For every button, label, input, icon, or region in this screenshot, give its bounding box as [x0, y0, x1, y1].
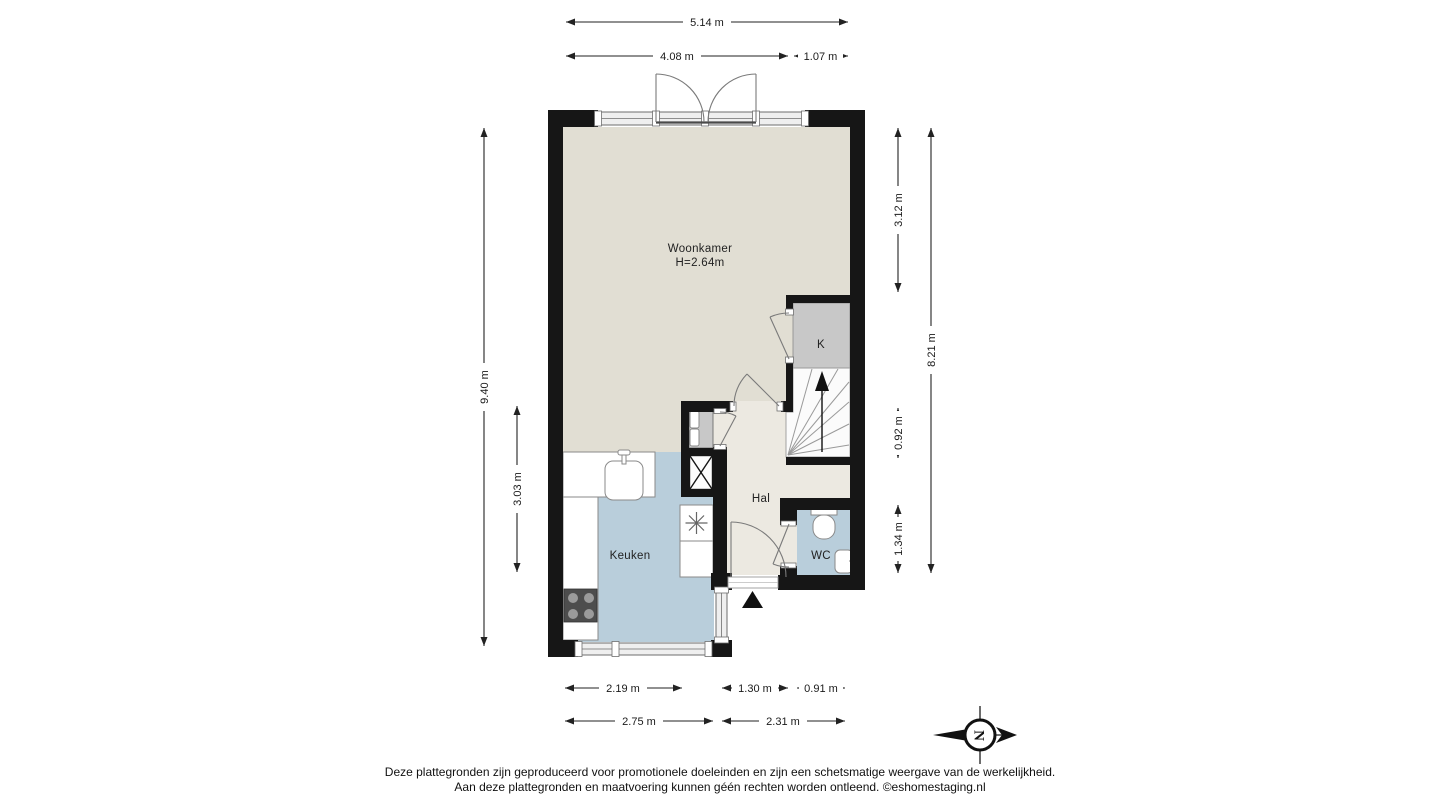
disclaimer-line-2: Aan deze plattegronden en maatvoering ku… [454, 780, 985, 794]
staircase [786, 368, 850, 457]
window-sidelight [715, 587, 729, 643]
room-label-kast: K [817, 339, 825, 351]
dimension-right-total: 8.21 m [924, 128, 938, 573]
dimension-bottom-door: 1.30 m [722, 681, 788, 695]
room-label-woonkamer-height: H=2.64m [675, 257, 724, 269]
dimension-left-kitchen: 3.03 m [510, 406, 524, 572]
room-label-woonkamer: Woonkamer [668, 243, 732, 255]
svg-text:4.08 m: 4.08 m [660, 51, 694, 63]
floorplan-page: Woonkamer H=2.64m Keuken Hal WC K 5.14 m… [0, 0, 1440, 810]
dimension-top-total: 5.14 m [566, 15, 848, 29]
svg-text:1.30 m: 1.30 m [738, 683, 772, 695]
svg-text:3.12 m: 3.12 m [893, 193, 905, 227]
kitchen-appliance-washer [680, 505, 713, 541]
room-kast-floor [793, 303, 850, 368]
svg-text:3.03 m: 3.03 m [512, 472, 524, 506]
entrance-marker [742, 591, 763, 608]
dimension-left-total: 9.40 m [477, 128, 491, 646]
svg-text:0.91 m: 0.91 m [804, 683, 838, 695]
dimension-right-living: 3.12 m [891, 128, 905, 292]
svg-text:2.19 m: 2.19 m [606, 683, 640, 695]
svg-text:1.07 m: 1.07 m [804, 51, 838, 63]
svg-text:2.31 m: 2.31 m [766, 716, 800, 728]
svg-text:1.34 m: 1.34 m [893, 522, 905, 556]
dimension-top-left: 4.08 m [566, 49, 788, 63]
dimension-bottom-right-section: 2.31 m [722, 714, 845, 728]
kitchen-appliance-cabinet [680, 541, 713, 577]
room-label-keuken: Keuken [610, 550, 651, 562]
meter-cupboard [689, 455, 713, 490]
svg-text:2.75 m: 2.75 m [622, 716, 656, 728]
svg-text:5.14 m: 5.14 m [690, 17, 724, 29]
boiler-closet [689, 409, 713, 448]
dimension-bottom-window: 2.19 m [565, 681, 682, 695]
window-bottom [575, 642, 712, 657]
compass: N [933, 706, 1017, 764]
toilet [811, 509, 837, 539]
dimension-bottom-left-section: 2.75 m [565, 714, 713, 728]
svg-text:9.40 m: 9.40 m [479, 370, 491, 404]
dimension-right-wc: 1.34 m [891, 505, 905, 573]
svg-text:8.21 m: 8.21 m [926, 333, 938, 367]
dimension-right-stairs: 0.92 m [891, 408, 905, 458]
room-label-wc: WC [811, 550, 831, 562]
floorplan-drawing: Woonkamer H=2.64m Keuken Hal WC K 5.14 m… [0, 0, 1440, 810]
svg-text:0.92 m: 0.92 m [893, 416, 905, 450]
dimension-bottom-wc: 0.91 m [797, 681, 845, 695]
cooktop [564, 589, 597, 622]
room-label-hal: Hal [752, 493, 770, 505]
window-top [595, 111, 809, 126]
dimension-top-right: 1.07 m [794, 49, 848, 63]
compass-north-label: N [971, 730, 987, 741]
disclaimer-line-1: Deze plattegronden zijn geproduceerd voo… [385, 765, 1055, 779]
